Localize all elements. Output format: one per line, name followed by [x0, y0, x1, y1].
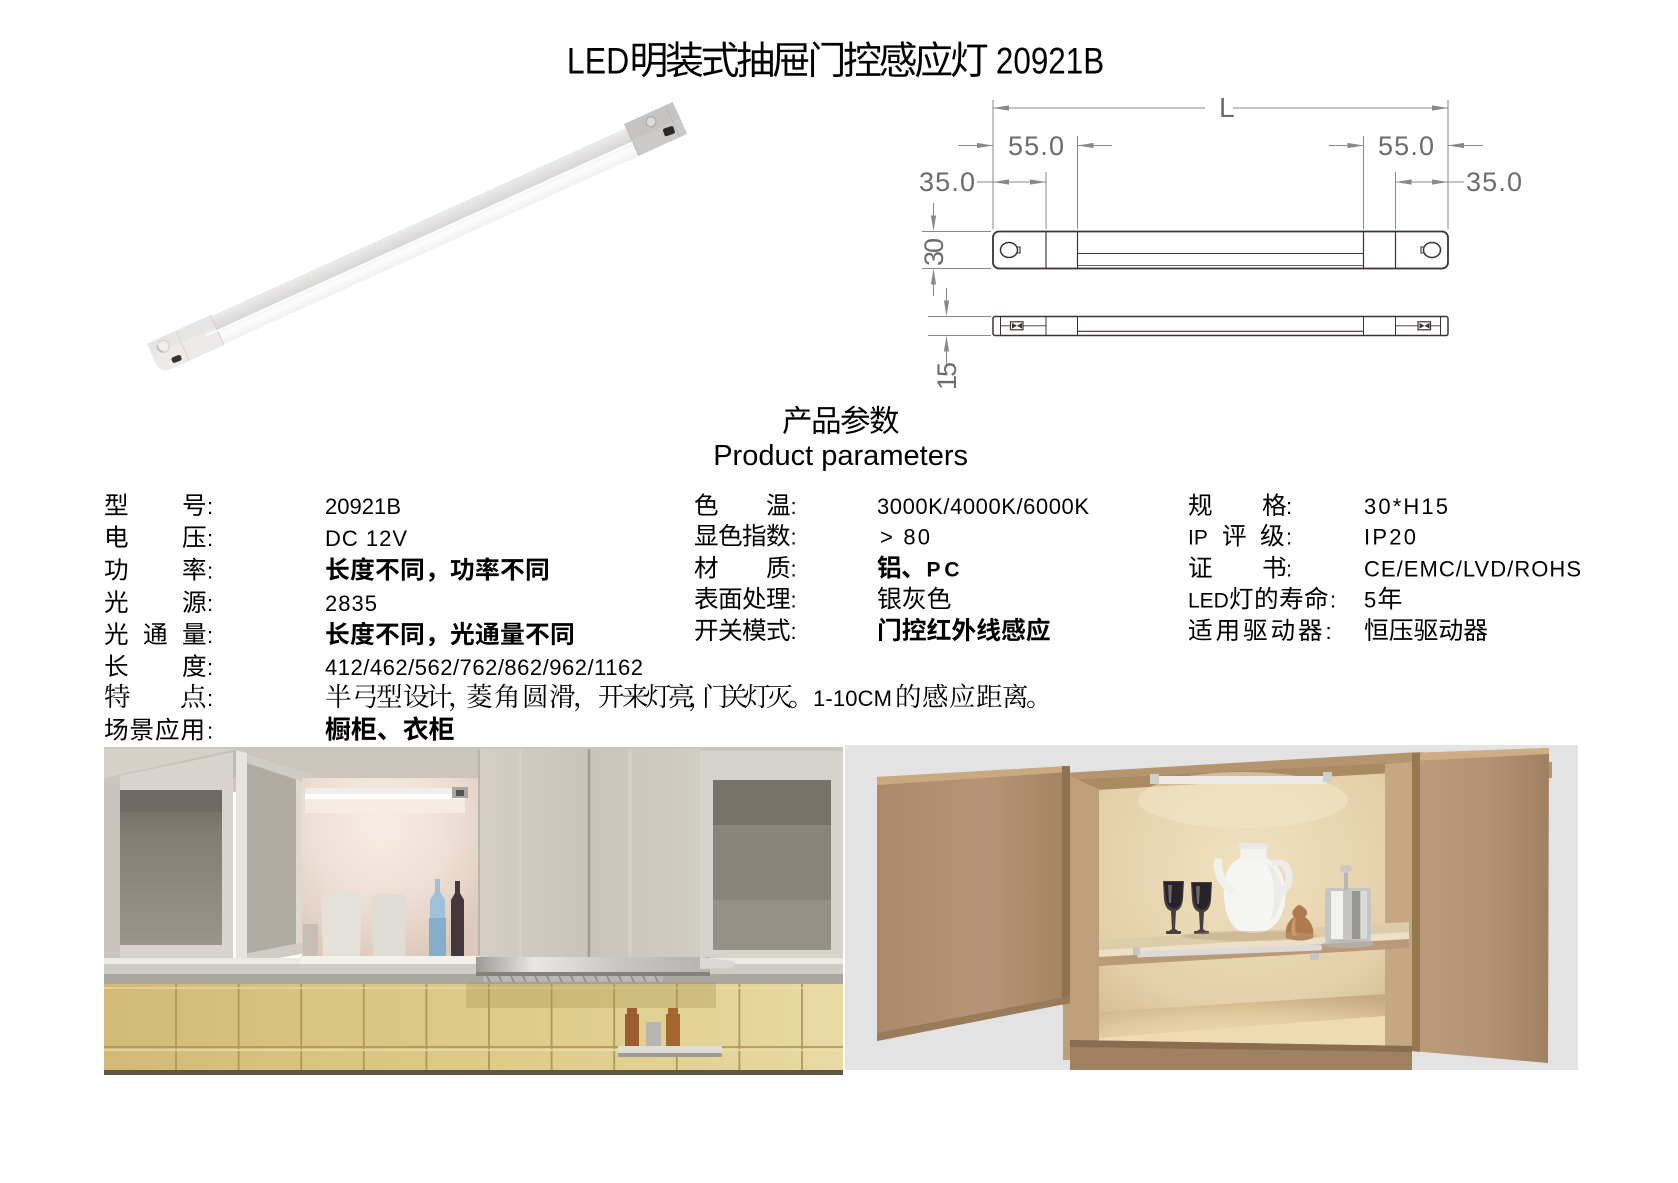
- svg-text::: :: [207, 526, 213, 551]
- svg-text::: :: [207, 686, 213, 711]
- svg-text:IP: IP: [1188, 527, 1208, 550]
- svg-text:20921B: 20921B: [325, 494, 401, 519]
- svg-text:IP20: IP20: [1364, 525, 1416, 550]
- svg-text::: :: [207, 623, 213, 648]
- svg-text::: :: [1286, 525, 1292, 550]
- svg-text::: :: [791, 494, 797, 519]
- svg-text:3000K/4000K/6000K: 3000K/4000K/6000K: [877, 494, 1089, 519]
- svg-text::: :: [207, 655, 213, 680]
- svg-text:35.0: 35.0: [1466, 167, 1522, 197]
- svg-text::: :: [791, 619, 797, 644]
- svg-text::: :: [791, 588, 797, 613]
- svg-text:412/462/562/762/862/962/1162: 412/462/562/762/862/962/1162: [325, 655, 643, 680]
- svg-text:L: L: [1219, 92, 1235, 123]
- svg-text:20921B: 20921B: [996, 41, 1104, 82]
- svg-text:30: 30: [919, 238, 949, 266]
- svg-text::: :: [207, 719, 213, 744]
- svg-text:Product parameters: Product parameters: [713, 440, 968, 472]
- svg-text::: :: [1326, 619, 1332, 644]
- svg-text::: :: [207, 559, 213, 584]
- svg-text::: :: [1330, 588, 1336, 613]
- svg-text:LED: LED: [567, 40, 629, 82]
- svg-text:LED: LED: [1188, 590, 1229, 613]
- svg-text:55.0: 55.0: [1378, 131, 1434, 161]
- svg-text:> 80: > 80: [880, 525, 930, 550]
- svg-text:15: 15: [932, 362, 962, 390]
- svg-text::: :: [791, 557, 797, 582]
- svg-text::: :: [791, 525, 797, 550]
- svg-text:55.0: 55.0: [1008, 131, 1064, 161]
- svg-text:5: 5: [1364, 588, 1376, 613]
- svg-text::: :: [207, 591, 213, 616]
- svg-text::: :: [1286, 494, 1292, 519]
- svg-text:CE/EMC/LVD/ROHS: CE/EMC/LVD/ROHS: [1364, 557, 1581, 582]
- svg-text:2835: 2835: [325, 591, 377, 616]
- svg-text:DC 12V: DC 12V: [325, 526, 407, 551]
- svg-text::: :: [207, 494, 213, 519]
- svg-text:1-10CM: 1-10CM: [813, 686, 892, 711]
- svg-text::: :: [1286, 557, 1292, 582]
- svg-text:35.0: 35.0: [919, 167, 975, 197]
